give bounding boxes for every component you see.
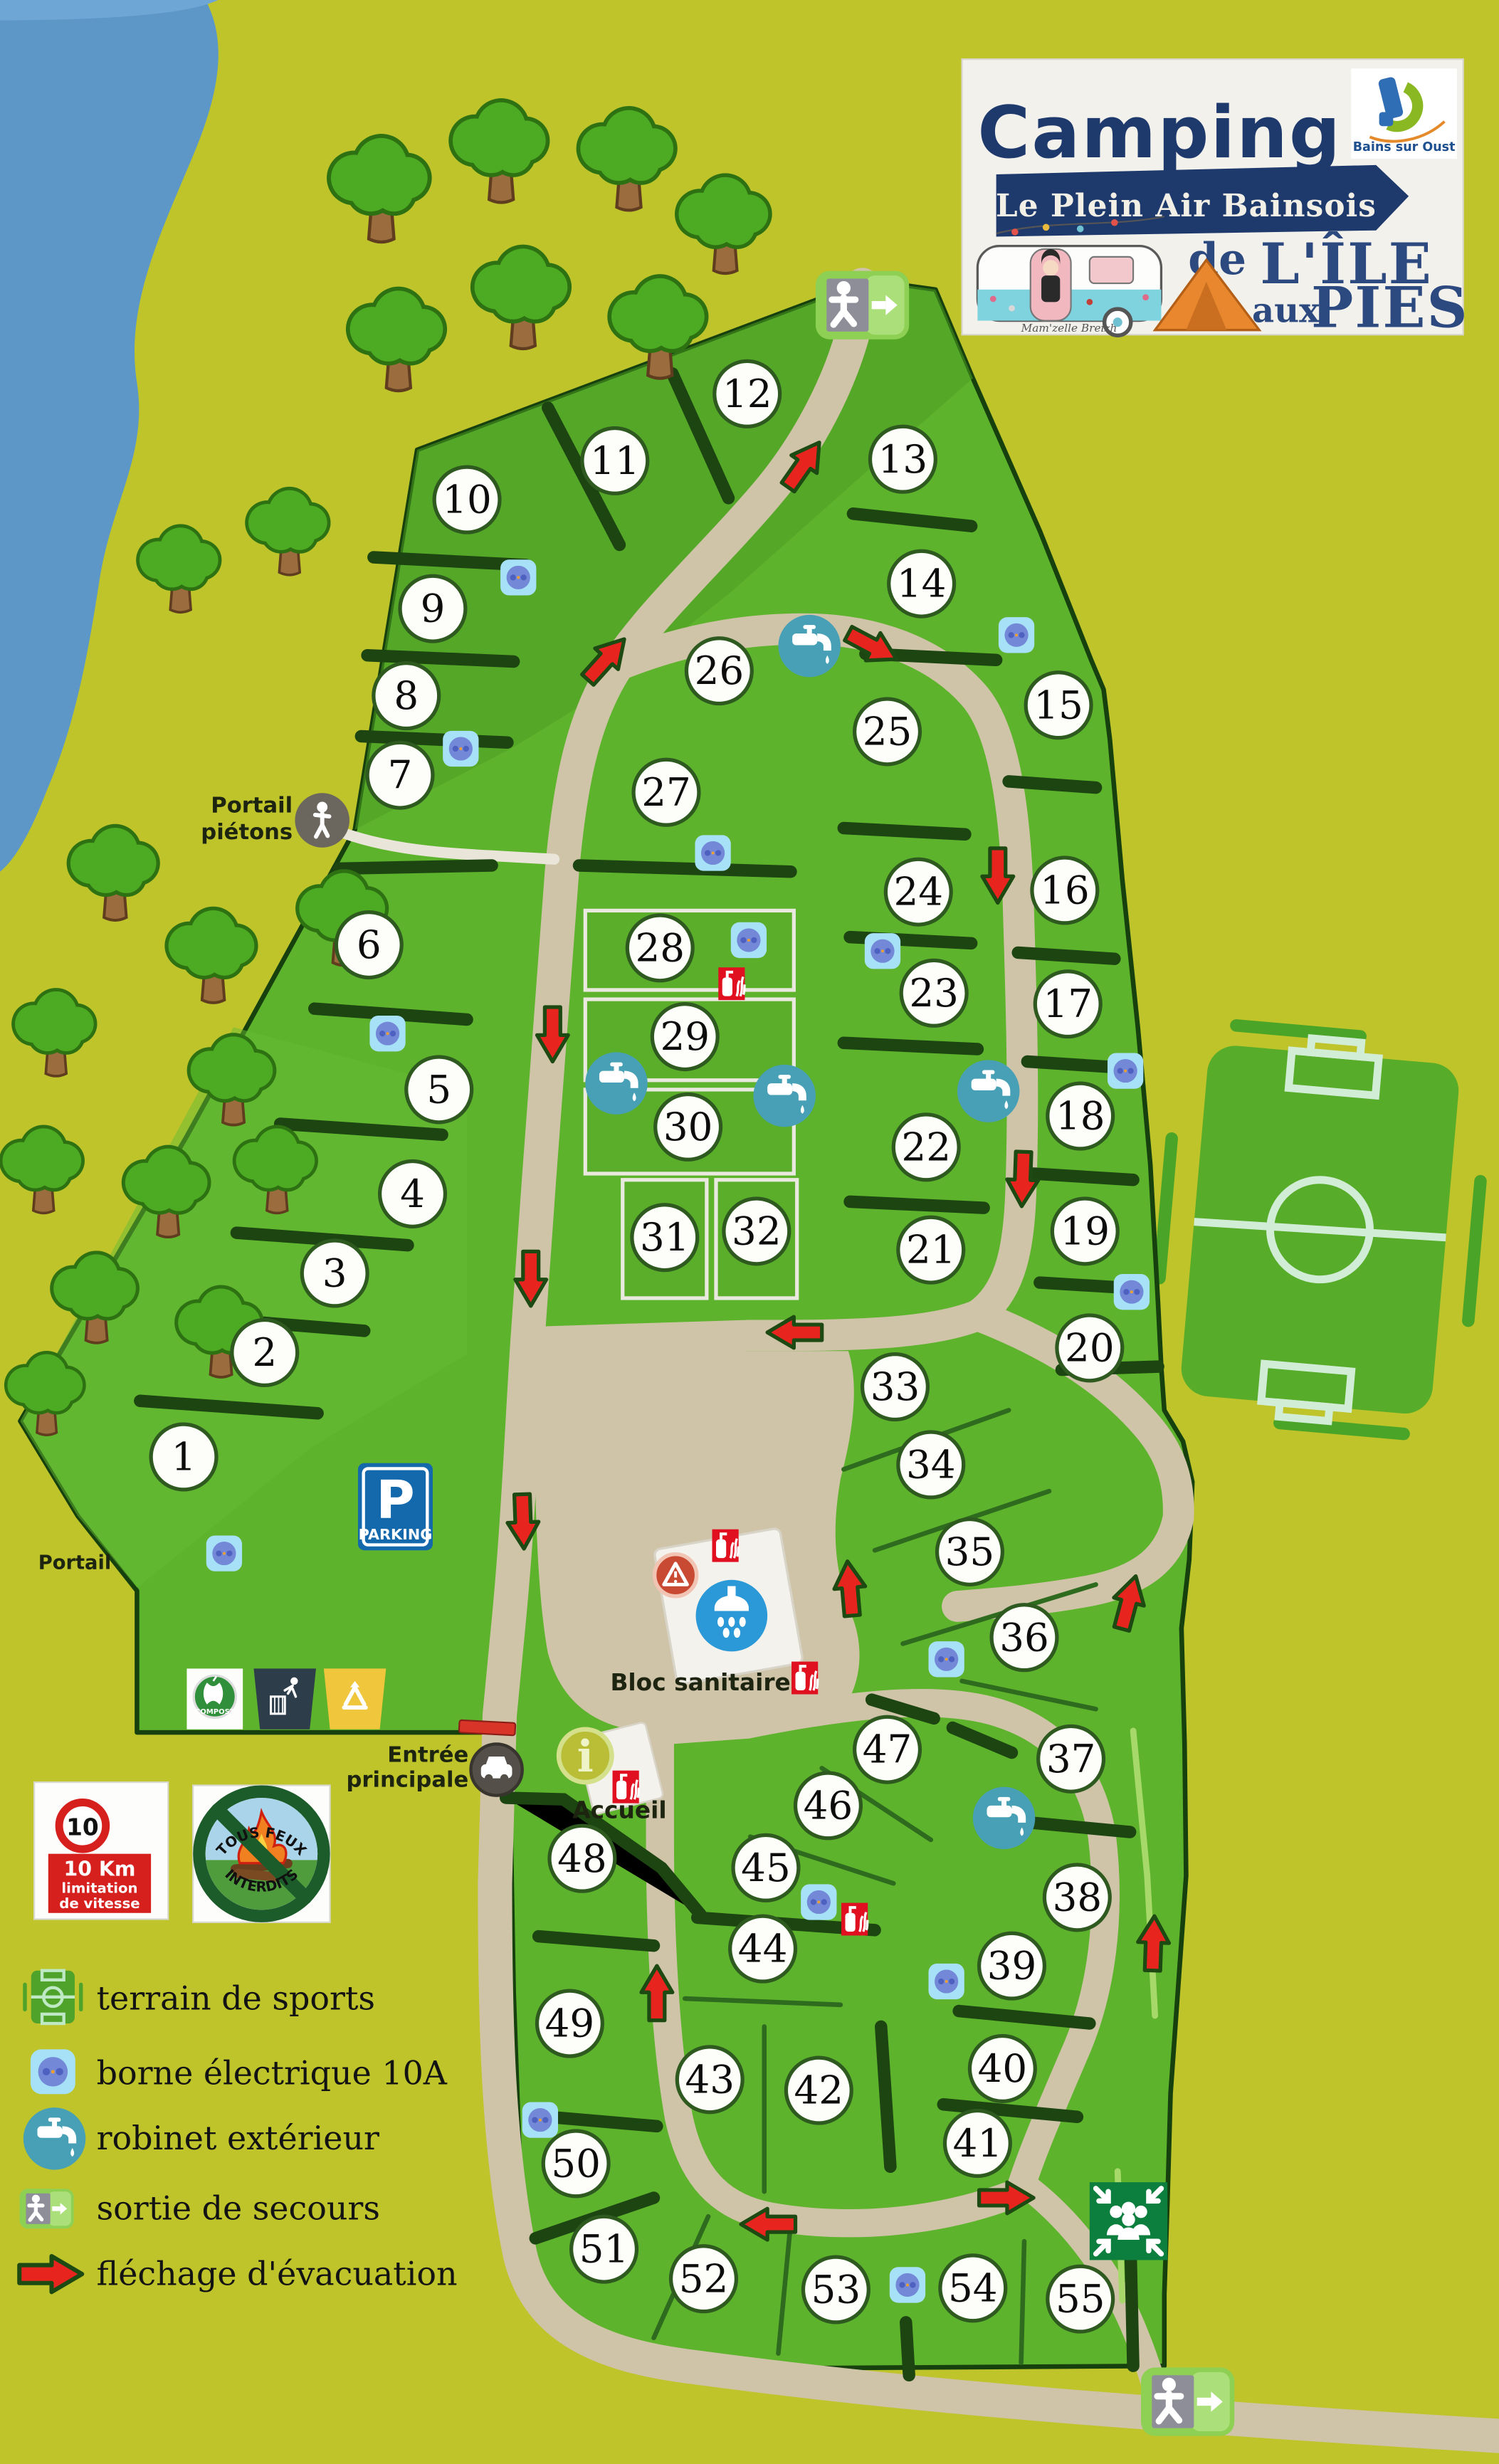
legend-label-arrow: fléchage d'évacuation [97,2254,458,2292]
pitch-number: 48 [557,1836,607,1881]
pitch-marker: 8 [374,663,439,729]
pitch-marker: 15 [1026,673,1091,738]
pitch-number: 53 [811,2267,861,2312]
pitch-marker: 1 [151,1424,216,1490]
pitch-number: 54 [948,2265,998,2310]
pitch-number: 6 [357,922,382,967]
pitch-marker: 51 [572,2216,637,2282]
pitch-marker: 38 [1044,1865,1110,1930]
pitch-number: 35 [945,1529,995,1574]
electric-post-icon [206,1535,242,1571]
pitch-number: 4 [400,1171,425,1216]
car-gate-icon [471,1744,522,1795]
pitch-marker: 5 [406,1057,472,1122]
pitch-marker: 39 [979,1933,1045,1999]
electric-post-icon [928,1964,964,1999]
speed-limit-sign: 10 10 Km limitation de vitesse [34,1782,168,1919]
electric-post-icon [500,559,536,595]
entrance-barrier [459,1720,516,1736]
town-logo-label: Bains sur Oust [1353,140,1456,154]
pitch-number: 9 [421,586,446,631]
pitch-marker: 21 [898,1217,964,1283]
svg-text:i: i [577,1732,594,1782]
electric-post-icon [31,2049,75,2094]
pitch-marker: 53 [803,2257,868,2322]
pitch-number: 12 [722,371,772,416]
pitch-number: 32 [732,1208,782,1253]
pitch-number: 25 [863,708,912,754]
pitch-number: 49 [545,2001,595,2046]
pitch-number: 45 [741,1845,791,1890]
pitch-marker: 10 [434,467,500,532]
speed-line3: de vitesse [59,1895,140,1912]
pitch-marker: 54 [940,2255,1006,2321]
pitch-marker: 34 [898,1432,964,1497]
pitch-marker: 18 [1048,1083,1113,1149]
electric-post-icon [369,1016,405,1051]
pitch-number: 44 [738,1926,788,1971]
portail-pietons-line2: piétons [201,820,293,845]
pitch-number: 43 [685,2056,735,2102]
pitch-number: 23 [909,970,959,1016]
compost-bin: COMPOST [186,1668,243,1729]
pitch-marker: 4 [380,1161,446,1226]
legend-label-electric: borne électrique 10A [97,2053,448,2092]
pitch-number: 51 [579,2226,629,2272]
pitch-number: 14 [897,561,947,606]
pitch-number: 5 [426,1066,451,1112]
pitch-number: 47 [863,1727,912,1772]
pitch-marker: 37 [1038,1726,1104,1791]
pitch-number: 22 [901,1124,951,1169]
pitch-marker: 47 [855,1717,920,1782]
shower-icon [696,1580,768,1652]
pitch-marker: 6 [336,912,401,978]
electric-post-icon [731,922,767,958]
pitch-marker: 44 [730,1916,796,1981]
pitch-number: 41 [953,2120,1003,2166]
entree-line2: principale [347,1768,469,1793]
pitch-marker: 2 [232,1320,298,1386]
pitch-marker: 27 [633,759,699,825]
pitch-number: 3 [322,1251,347,1296]
pitch-marker: 17 [1035,972,1100,1037]
no-fires-sign: TOUS FEUX INTERDITS [193,1785,330,1922]
title-block: Camping Bains sur Oust Le Plein Air Bain… [962,59,1469,340]
pitch-marker: 49 [537,1991,602,2056]
pitch-marker: 24 [885,859,951,925]
pitch-number: 21 [906,1227,956,1273]
portail-pietons-line1: Portail [211,794,293,818]
warning-icon [655,1554,697,1596]
portail-label: Portail [38,1552,112,1574]
pitch-number: 31 [640,1214,690,1260]
parking-p-label: P [376,1468,414,1530]
pitch-marker: 40 [969,2036,1035,2102]
pitch-marker: 19 [1052,1199,1117,1264]
pitch-number: 28 [635,925,685,970]
pitch-marker: 52 [671,2246,737,2312]
pitch-marker: 29 [652,1004,717,1070]
pitch-number: 50 [551,2140,601,2186]
pitch-marker: 23 [901,960,967,1026]
fire-extinguisher-icon [841,1903,868,1936]
map-canvas: 1234567891011121314151617181920212223242… [0,0,1499,2464]
pitch-marker: 28 [627,915,693,981]
recycling-bin [324,1668,386,1729]
speed-line2: limitation [61,1880,137,1896]
pitch-number: 42 [794,2068,844,2113]
pitch-number: 27 [641,769,691,815]
pitch-marker: 43 [677,2047,742,2112]
fire-extinguisher-icon [791,1662,818,1695]
town-logo: Bains sur Oust [1351,68,1457,159]
pitch-marker: 11 [582,428,648,493]
pitch-marker: 22 [893,1115,959,1180]
electric-post-icon [890,2267,925,2302]
emergency-exit-icon [20,2189,74,2228]
legend-label-tap: robinet extérieur [97,2119,379,2157]
illustrator-signature: Mam'zelle Breizh [1021,322,1117,335]
pitch-marker: 42 [786,2058,851,2123]
pitch-marker: 3 [302,1241,367,1306]
sports-field-icon [25,1971,81,2023]
pitch-marker: 41 [945,2111,1010,2176]
pitch-marker: 46 [796,1773,861,1838]
speed-line1: 10 Km [63,1857,135,1880]
electric-post-icon [801,1884,836,1920]
legend-label-exit: sortie de secours [97,2189,380,2228]
electric-post-icon [928,1641,964,1677]
tap-icon [957,1060,1019,1122]
pitch-marker: 32 [724,1199,789,1264]
pitch-marker: 9 [400,576,466,641]
pitch-number: 55 [1056,2276,1105,2322]
pitch-marker: 45 [733,1835,799,1900]
pitch-marker: 7 [367,742,433,808]
pitch-marker: 20 [1057,1315,1122,1381]
legend-label-sports: terrain de sports [97,1979,375,2017]
pitch-number: 19 [1060,1208,1110,1253]
parking-sign: P PARKING [358,1463,433,1550]
pitch-number: 10 [442,477,492,522]
pitch-number: 30 [663,1104,713,1149]
pitch-number: 37 [1046,1736,1096,1781]
pitch-marker: 30 [656,1094,721,1159]
accueil-label: Accueil [572,1796,666,1823]
pitch-number: 11 [590,438,640,483]
pitch-marker: 26 [686,638,752,704]
pitch-marker: 33 [863,1354,928,1420]
tap-icon [778,615,840,677]
pitch-number: 16 [1040,868,1090,913]
pitch-number: 18 [1056,1093,1105,1139]
pitch-number: 20 [1065,1325,1115,1371]
pitch-marker: 14 [889,551,954,616]
pitch-marker: 31 [632,1205,698,1270]
camping-map-board: 1234567891011121314151617181920212223242… [0,0,1499,2464]
trash-bin [253,1668,315,1729]
emergency-exit-icon [1141,2367,1234,2436]
pitch-marker: 25 [855,699,920,764]
pitch-marker: 50 [543,2131,609,2196]
pitch-number: 24 [893,869,943,915]
electric-post-icon [695,835,730,870]
electric-post-icon [1108,1053,1143,1089]
electric-post-icon [443,731,478,767]
pitch-number: 39 [987,1943,1037,1989]
tap-icon [585,1052,647,1114]
pitch-number: 46 [804,1782,853,1828]
title-pies: PIES [1311,274,1469,340]
electric-post-icon [522,2102,558,2137]
pitch-number: 13 [878,436,928,482]
pitch-number: 2 [252,1330,277,1375]
pitch-number: 52 [679,2255,729,2301]
pitch-number: 7 [388,752,413,798]
pitch-marker: 16 [1032,858,1098,923]
info-icon: i [559,1729,611,1782]
pitch-marker: 12 [715,361,780,426]
pitch-marker: 36 [992,1605,1057,1670]
title-main: Camping [977,91,1342,174]
parking-label: PARKING [359,1526,433,1543]
title-aux: aux [1252,291,1320,331]
pitch-number: 17 [1043,981,1093,1026]
bloc-sanitaire-label: Bloc sanitaire [610,1669,790,1696]
compost-label: COMPOST [195,1708,235,1716]
pitch-number: 29 [660,1013,710,1059]
speed-value: 10 [66,1813,99,1841]
electric-post-icon [999,617,1034,653]
fire-extinguisher-icon [718,967,745,1000]
pitch-number: 38 [1053,1874,1103,1920]
entree-line1: Entrée [387,1743,468,1768]
waste-bins: COMPOST [186,1668,386,1729]
title-banner-text: Le Plein Air Bainsois [996,188,1377,224]
tap-icon [23,2107,85,2169]
pitch-number: 1 [172,1434,196,1480]
pitch-marker: 13 [870,426,935,492]
pitch-marker: 55 [1048,2266,1113,2332]
pitch-number: 40 [978,2046,1028,2091]
pitch-marker: 35 [937,1519,1003,1584]
emergency-exit-icon [816,271,909,339]
electric-post-icon [865,933,900,969]
electric-post-icon [1114,1274,1150,1310]
pitch-number: 15 [1033,682,1083,727]
pitch-number: 36 [999,1614,1049,1660]
pedestrian-gate-icon [295,793,349,848]
tap-icon [973,1787,1035,1849]
pitch-number: 26 [695,648,745,693]
pitch-number: 34 [906,1442,956,1488]
pitch-number: 8 [394,673,419,718]
tap-icon [753,1065,815,1127]
fire-extinguisher-icon [712,1530,739,1562]
pitch-number: 33 [871,1364,920,1409]
pitch-marker: 48 [549,1826,615,1891]
assembly-point-icon [1090,2182,1167,2260]
